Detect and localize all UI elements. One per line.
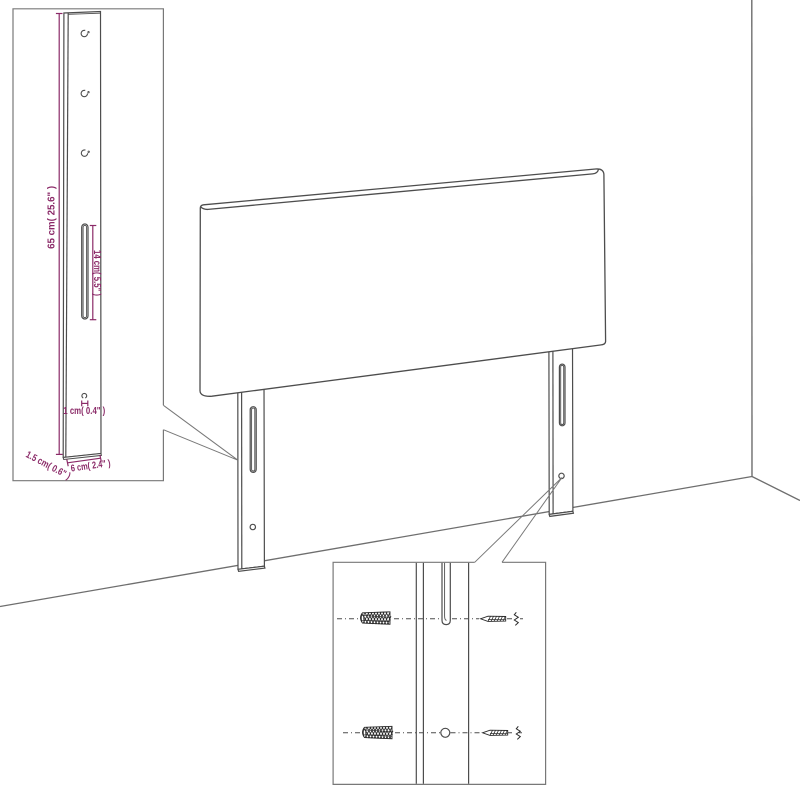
- svg-text:65 cm( 25.6" ): 65 cm( 25.6" ): [47, 186, 58, 249]
- svg-text:14 cm( 5.5" ): 14 cm( 5.5" ): [91, 250, 102, 296]
- svg-text:1 cm( 0.4" ): 1 cm( 0.4" ): [63, 406, 105, 417]
